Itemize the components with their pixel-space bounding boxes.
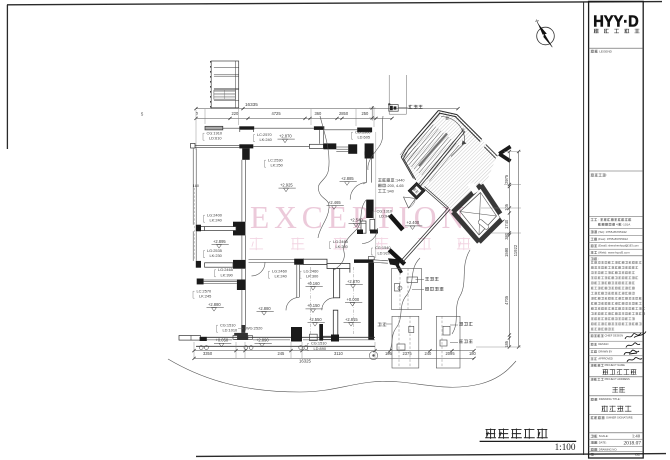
svg-text:1740: 1740 (504, 219, 509, 229)
svg-text:4705: 4705 (504, 295, 509, 305)
svg-text:DESIGN: DESIGN (598, 342, 608, 346)
svg-text:APPROVED: APPROVED (598, 357, 613, 361)
svg-text::200, 4-65: :200, 4-65 (387, 184, 404, 188)
svg-text:16335: 16335 (245, 102, 258, 107)
svg-text:LK:250: LK:250 (271, 163, 284, 168)
svg-text:+2.925: +2.925 (280, 182, 293, 187)
svg-text:185: 185 (504, 340, 509, 348)
svg-text:LK:240: LK:240 (336, 244, 349, 249)
svg-text:(Email): shenzhenhyyd@163.com: (Email): shenzhenhyyd@163.com (598, 244, 639, 248)
svg-text:3350: 3350 (203, 351, 213, 356)
svg-text:+2.885: +2.885 (341, 176, 354, 181)
svg-text:CG:1510: CG:1510 (311, 341, 327, 346)
svg-text:LK:240: LK:240 (210, 218, 223, 223)
svg-text:LC:2570: LC:2570 (197, 288, 213, 293)
svg-text:240: 240 (425, 351, 433, 356)
svg-text:245: 245 (278, 351, 286, 356)
svg-text:HYY·D: HYY·D (593, 14, 639, 31)
svg-text:16325: 16325 (299, 358, 312, 363)
svg-text:DRAWN BY: DRAWN BY (598, 350, 612, 354)
svg-text:LEGEND: LEGEND (599, 49, 612, 53)
svg-text:LC:2530: LC:2530 (268, 157, 284, 162)
svg-text:2850: 2850 (339, 111, 349, 116)
svg-text:LK:300: LK:300 (306, 274, 319, 279)
svg-text::1440: :1440 (395, 179, 405, 183)
svg-text:+0.000: +0.000 (347, 297, 360, 302)
svg-text:4725: 4725 (272, 111, 282, 116)
svg-text:LD:940: LD:940 (379, 214, 392, 219)
svg-text:380: 380 (504, 232, 509, 240)
svg-text:LD:920: LD:920 (378, 251, 391, 256)
svg-text:1:40: 1:40 (632, 434, 641, 439)
svg-text:1590: 1590 (504, 247, 509, 257)
svg-text:2375: 2375 (403, 351, 413, 356)
svg-text:LK:390: LK:390 (221, 272, 234, 277)
svg-text:LK:230: LK:230 (210, 253, 223, 258)
svg-text:2018.07: 2018.07 (623, 440, 641, 446)
svg-text:+2.895: +2.895 (213, 239, 226, 244)
svg-text:CG:1540: CG:1540 (375, 245, 391, 250)
svg-text:LG:2535: LG:2535 (207, 248, 222, 253)
svg-text::: : (598, 257, 599, 261)
svg-text:360: 360 (315, 111, 323, 116)
svg-text:2095: 2095 (446, 351, 456, 356)
svg-text:DRAWING NO:: DRAWING NO: (599, 447, 618, 451)
svg-text:+0.150: +0.150 (307, 303, 320, 308)
svg-text:SCALE:: SCALE: (599, 434, 609, 438)
svg-text:LK:240: LK:240 (260, 137, 273, 142)
svg-text:DRAWING TITLE:: DRAWING TITLE: (599, 397, 621, 401)
svg-text:3110: 3110 (334, 351, 344, 356)
svg-text:01: 01 (635, 452, 640, 457)
svg-text:OWNER SIGNATURE:: OWNER SIGNATURE: (606, 416, 634, 420)
svg-text:CG:1310: CG:1310 (377, 208, 393, 213)
svg-text:LG:2465: LG:2465 (218, 267, 233, 272)
svg-text:5: 5 (196, 112, 198, 116)
svg-text:+2.880: +2.880 (258, 306, 271, 311)
svg-text:CG:1510: CG:1510 (220, 322, 236, 327)
svg-text:LD:610: LD:610 (209, 136, 222, 141)
svg-text:LD:1010: LD:1010 (223, 328, 239, 333)
svg-text:PROJECT NAME: PROJECT NAME (605, 363, 626, 367)
svg-text:+2.815: +2.815 (345, 317, 358, 322)
svg-text:CG:1910: CG:1910 (207, 130, 223, 135)
svg-text:LD:890: LD:890 (314, 346, 327, 351)
svg-text:LG:2460: LG:2460 (304, 268, 320, 273)
svg-text:+2.400: +2.400 (407, 220, 420, 225)
svg-text:1:100: 1:100 (555, 442, 576, 452)
svg-text:LD:605: LD:605 (358, 135, 371, 140)
svg-text:+2.550: +2.550 (309, 317, 322, 322)
svg-text:LG:2400: LG:2400 (207, 212, 223, 217)
svg-text:+2.540: +2.540 (350, 218, 363, 223)
svg-text:CG:1900: CG:1900 (355, 129, 371, 134)
svg-text::: : (598, 218, 599, 222)
svg-text:LG:2460: LG:2460 (272, 268, 288, 273)
svg-text:PROJECT ADDRESS: PROJECT ADDRESS (605, 377, 630, 381)
svg-text:+0.160: +0.160 (307, 281, 320, 286)
svg-text:-101A: -101A (622, 222, 630, 226)
svg-text:(Web): www.hyyd5.com: (Web): www.hyyd5.com (598, 251, 630, 255)
svg-text:+2.870: +2.870 (347, 279, 360, 284)
svg-text:250: 250 (362, 111, 370, 116)
svg-text:DATE:: DATE: (599, 440, 607, 444)
svg-text:180: 180 (193, 184, 199, 188)
svg-text:(Fax): 0755-86705912: (Fax): 0755-86705912 (598, 237, 628, 241)
svg-text::: : (606, 173, 607, 177)
svg-text:LK:240: LK:240 (275, 274, 288, 279)
svg-text:+2.465: +2.465 (328, 200, 341, 205)
svg-text::: : (595, 452, 596, 456)
svg-text:180: 180 (469, 351, 477, 356)
svg-text:LG:2465: LG:2465 (333, 239, 348, 244)
svg-text:+2.890: +2.890 (256, 338, 269, 343)
svg-text:11922: 11922 (513, 244, 518, 256)
svg-text:WG:2520: WG:2520 (246, 326, 263, 331)
svg-text::940: :940 (387, 189, 394, 193)
svg-text:+0.050: +0.050 (216, 338, 229, 343)
svg-text:LK:245: LK:245 (199, 294, 211, 299)
svg-text:220: 220 (232, 111, 240, 116)
svg-text:2975: 2975 (504, 174, 509, 184)
svg-text:105: 105 (504, 203, 509, 211)
svg-text:(Tel): 0755-86705342: (Tel): 0755-86705342 (598, 230, 627, 234)
svg-text:+2.870: +2.870 (279, 133, 292, 138)
svg-text:CHIEF DESIGN: CHIEF DESIGN (605, 334, 624, 338)
svg-text:LC:2570: LC:2570 (257, 132, 273, 137)
svg-text:+2.880: +2.880 (208, 302, 221, 307)
